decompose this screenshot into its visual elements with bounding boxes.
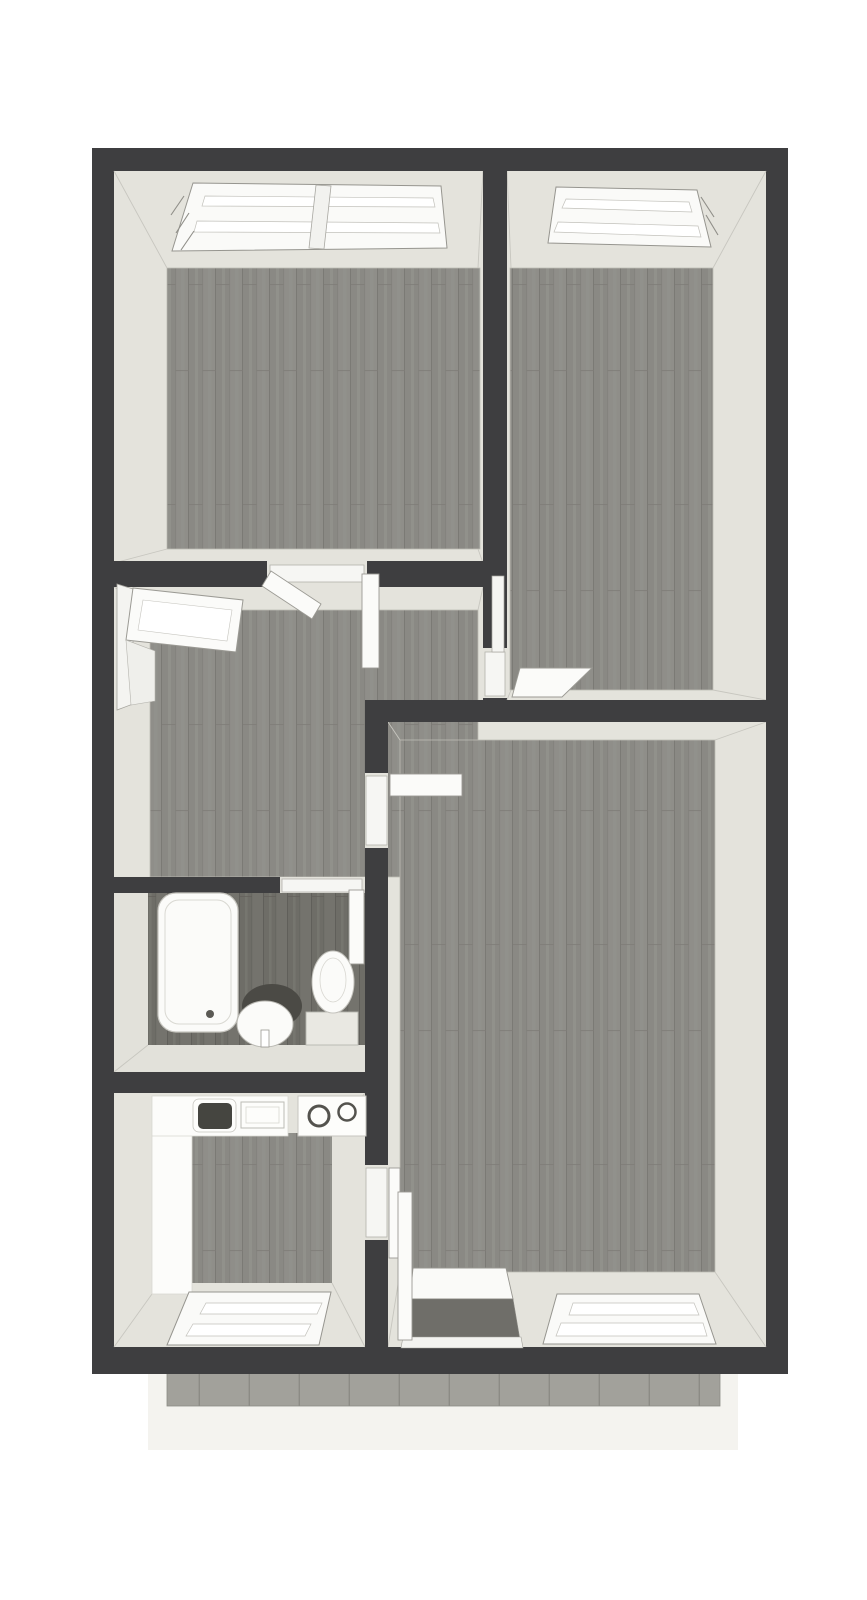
balcony-door-glass: [404, 1299, 520, 1340]
floor-plan-page: [0, 0, 867, 1600]
bathroom-door-leaf: [349, 890, 364, 964]
doorway-kitchen-living-threshold: [366, 1168, 387, 1237]
bathtub-drain: [206, 1010, 214, 1018]
wall-hall-living-mid: [365, 848, 388, 1165]
bedroom2-window-frame: [548, 187, 711, 247]
living-window-rail-top: [569, 1303, 699, 1315]
doorway-hall-living-threshold: [366, 776, 387, 845]
stove-burner-right: [339, 1104, 356, 1121]
bathtub: [158, 893, 238, 1032]
kitchen-drainboard: [241, 1102, 284, 1128]
wall-bathroom-south: [114, 1072, 365, 1093]
balcony-door-sill: [410, 1268, 513, 1299]
living-window-rail-bottom: [556, 1323, 707, 1336]
toilet-base: [306, 1012, 358, 1045]
kitchen-window-frame: [167, 1292, 331, 1345]
washbasin-tap: [261, 1030, 269, 1047]
wall-bedroom1-south-right: [367, 561, 483, 587]
wall-bedroom-divider: [483, 148, 507, 648]
bedroom1-floor: [167, 268, 480, 549]
hall-living-door-leaf: [390, 774, 462, 796]
doorway-bedroom2-frame: [492, 576, 504, 652]
kitchen-sink-basin: [198, 1103, 232, 1129]
balcony-door-bottom-rail: [401, 1337, 523, 1348]
wall-living-north: [365, 700, 788, 722]
balcony-door-open-leaf: [398, 1192, 412, 1340]
floor-plan-rendering: [0, 0, 867, 1600]
kitchen-floor: [192, 1133, 332, 1283]
kitchen-window-rail-top: [200, 1303, 322, 1314]
stove-burner-left: [309, 1106, 329, 1126]
living-window-frame: [543, 1294, 716, 1344]
hall-window-reveal: [126, 640, 155, 705]
wall-kitchen-living-lower: [365, 1240, 388, 1347]
balcony-tile-floor: [167, 1372, 720, 1406]
living-floor: [400, 740, 715, 1272]
kitchen-window-rail-bottom: [186, 1324, 311, 1336]
bedroom1-door-leaf-right: [362, 574, 379, 668]
wall-hall-living-upper: [365, 722, 388, 773]
wall-bedroom1-south-left: [114, 561, 267, 587]
toilet-bowl: [312, 951, 354, 1013]
bedroom2-floor: [510, 268, 713, 690]
wall-bathroom-north: [114, 877, 280, 893]
doorway-bedroom2-threshold: [485, 652, 505, 696]
